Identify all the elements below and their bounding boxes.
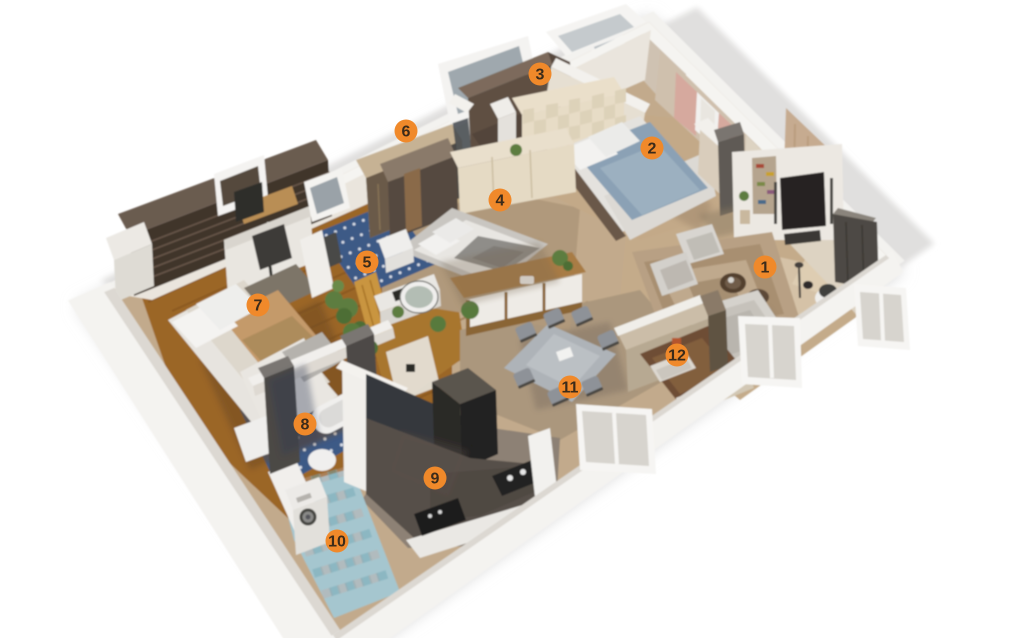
svg-text:8: 8 — [301, 417, 310, 434]
svg-text:5: 5 — [363, 255, 372, 272]
svg-text:10: 10 — [328, 534, 346, 551]
svg-text:11: 11 — [562, 380, 579, 397]
svg-text:12: 12 — [668, 348, 686, 365]
svg-text:6: 6 — [402, 124, 411, 141]
svg-text:7: 7 — [254, 298, 263, 315]
svg-text:1: 1 — [761, 260, 770, 277]
svg-text:2: 2 — [648, 141, 657, 158]
svg-text:4: 4 — [496, 193, 505, 210]
svg-text:3: 3 — [536, 67, 545, 84]
svg-text:9: 9 — [431, 471, 440, 488]
